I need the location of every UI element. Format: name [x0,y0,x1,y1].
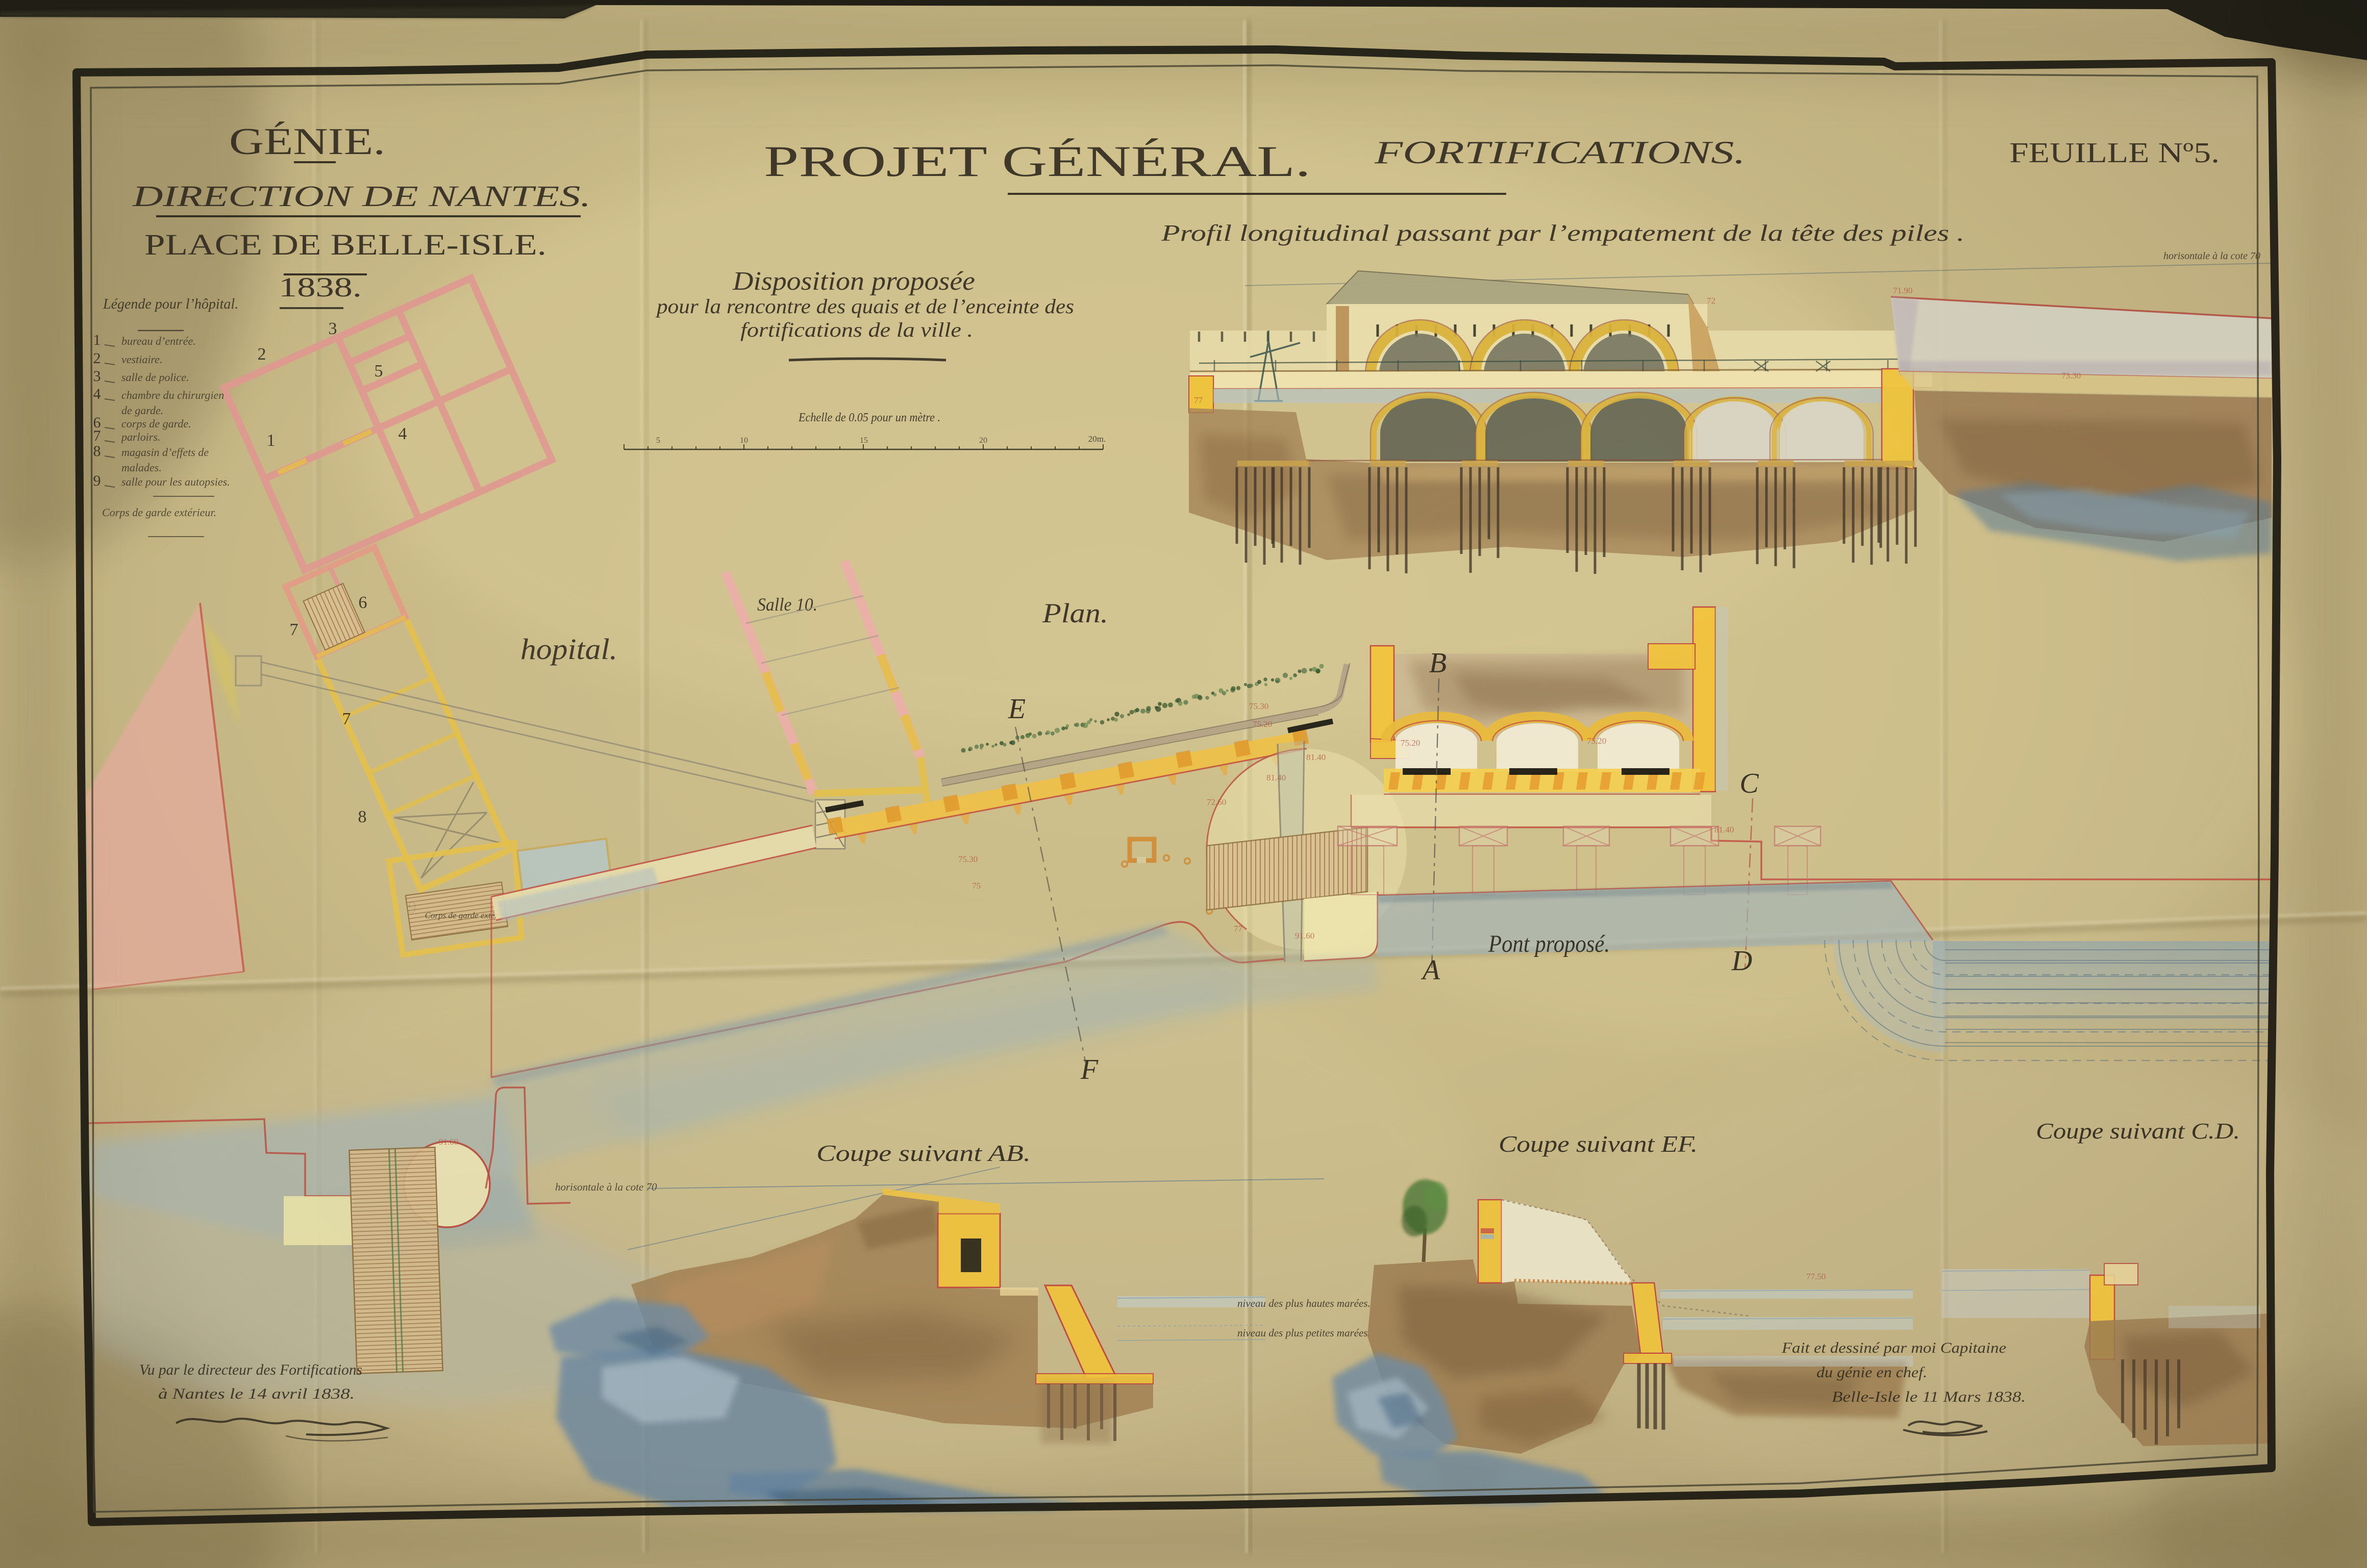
svg-text:DIRECTION DE NANTES.: DIRECTION DE NANTES. [132,180,591,213]
svg-text:4: 4 [398,424,407,443]
svg-text:7: 7 [93,427,101,444]
svg-text:Plan.: Plan. [1042,598,1108,628]
svg-text:75.30: 75.30 [958,854,978,864]
svg-text:horisontale à la cote 70: horisontale à la cote 70 [555,1181,657,1193]
svg-text:Pont proposé.: Pont proposé. [1488,930,1610,957]
svg-text:vestiaire.: vestiaire. [121,353,162,366]
svg-text:Belle-Isle le 11 Mars 1838.: Belle-Isle le 11 Mars 1838. [1832,1388,2026,1405]
svg-text:4: 4 [93,386,101,402]
svg-text:Fait et dessiné par moi Capita: Fait et dessiné par moi Capitaine [1781,1339,2006,1356]
svg-text:5: 5 [656,436,660,445]
svg-text:6: 6 [359,593,367,612]
svg-text:75.20: 75.20 [1253,719,1272,729]
svg-text:malades.: malades. [121,461,162,474]
svg-text:75.30: 75.30 [1249,701,1268,711]
svg-text:81.40: 81.40 [1266,773,1286,782]
svg-text:15: 15 [860,436,868,445]
svg-text:Vu par le directeur des Fortif: Vu par le directeur des Fortifications [139,1361,362,1378]
svg-text:corps de garde.: corps de garde. [121,417,191,430]
svg-text:7: 7 [290,620,298,639]
svg-text:73.30: 73.30 [2061,371,2081,381]
svg-text:D: D [1731,945,1752,977]
svg-text:20m.: 20m. [1088,434,1106,444]
svg-text:B: B [1429,647,1447,679]
svg-text:FEUILLE Nº5.: FEUILLE Nº5. [2009,137,2220,169]
svg-text:hopital.: hopital. [520,633,617,666]
svg-text:2: 2 [258,345,266,364]
svg-text:71.90: 71.90 [1893,286,1912,295]
svg-text:niveau des plus petites marées: niveau des plus petites marées. [1237,1327,1371,1339]
svg-text:salle pour les autopsies.: salle pour les autopsies. [121,475,230,488]
svg-text:77: 77 [1194,395,1203,405]
svg-text:72.60: 72.60 [1207,797,1226,807]
svg-text:pour la rencontre des quais et: pour la rencontre des quais et de l’ence… [655,295,1074,318]
svg-text:81.40: 81.40 [1714,825,1734,834]
svg-text:1838.: 1838. [279,272,362,302]
svg-text:Coupe suivant C.D.: Coupe suivant C.D. [2036,1119,2240,1144]
svg-text:75.20: 75.20 [1401,738,1420,748]
svg-text:91.60: 91.60 [1295,931,1314,941]
svg-text:Corps de garde extérieur.: Corps de garde extérieur. [102,506,216,519]
svg-text:salle de police.: salle de police. [121,371,189,384]
svg-text:de garde.: de garde. [121,404,163,417]
svg-text:Coupe suivant EF.: Coupe suivant EF. [1499,1131,1698,1157]
svg-text:81.40: 81.40 [1306,752,1326,762]
svg-text:2: 2 [93,350,101,367]
svg-text:77: 77 [1234,924,1243,933]
svg-text:horisontale à la cote 70: horisontale à la cote 70 [2163,250,2260,262]
svg-text:chambre du chirurgien: chambre du chirurgien [121,389,224,401]
svg-text:GÉNIE.: GÉNIE. [229,121,385,163]
svg-text:F: F [1080,1054,1099,1085]
svg-text:3: 3 [329,319,337,338]
svg-text:PLACE DE BELLE-ISLE.: PLACE DE BELLE-ISLE. [144,228,546,261]
svg-text:E: E [1008,693,1026,725]
svg-text:91.60: 91.60 [439,1137,458,1147]
svg-text:fortifications de la ville .: fortifications de la ville . [740,318,973,341]
svg-text:8: 8 [93,443,101,460]
svg-text:PROJET GÉNÉRAL.: PROJET GÉNÉRAL. [764,137,1311,186]
svg-text:Echelle de 0.05 pour un mètre: Echelle de 0.05 pour un mètre . [798,411,940,424]
svg-text:magasin d’effets de: magasin d’effets de [121,446,209,459]
svg-text:niveau des plus hautes marées.: niveau des plus hautes marées. [1237,1297,1371,1309]
svg-text:7: 7 [342,710,351,728]
svg-text:bureau d’entrée.: bureau d’entrée. [121,335,196,347]
svg-text:9: 9 [93,472,101,489]
svg-text:Profil longitudinal passant pa: Profil longitudinal passant par l’empate… [1161,220,1964,246]
svg-text:Disposition proposée: Disposition proposée [732,267,975,296]
svg-text:Coupe suivant AB.: Coupe suivant AB. [816,1140,1031,1166]
svg-text:77.50: 77.50 [1806,1272,1826,1281]
svg-text:1: 1 [267,431,276,450]
svg-text:du génie en chef.: du génie en chef. [1816,1364,1927,1381]
svg-text:FORTIFICATIONS.: FORTIFICATIONS. [1374,134,1746,170]
svg-text:1: 1 [93,332,101,348]
svg-text:Salle 10.: Salle 10. [757,594,817,615]
svg-text:20: 20 [979,436,987,445]
svg-text:C: C [1739,768,1759,799]
svg-text:A: A [1421,954,1440,986]
svg-text:3: 3 [93,368,101,385]
svg-text:75: 75 [972,881,981,891]
svg-text:à Nantes le 14 avril 1838.: à Nantes le 14 avril 1838. [158,1385,355,1402]
svg-text:8: 8 [358,807,367,826]
svg-text:72: 72 [1707,296,1715,306]
svg-text:10: 10 [740,436,748,445]
svg-text:parloirs.: parloirs. [120,431,160,443]
svg-text:75.20: 75.20 [1587,736,1606,746]
svg-text:Légende pour l’hôpital.: Légende pour l’hôpital. [103,296,238,312]
svg-text:5: 5 [375,362,383,381]
